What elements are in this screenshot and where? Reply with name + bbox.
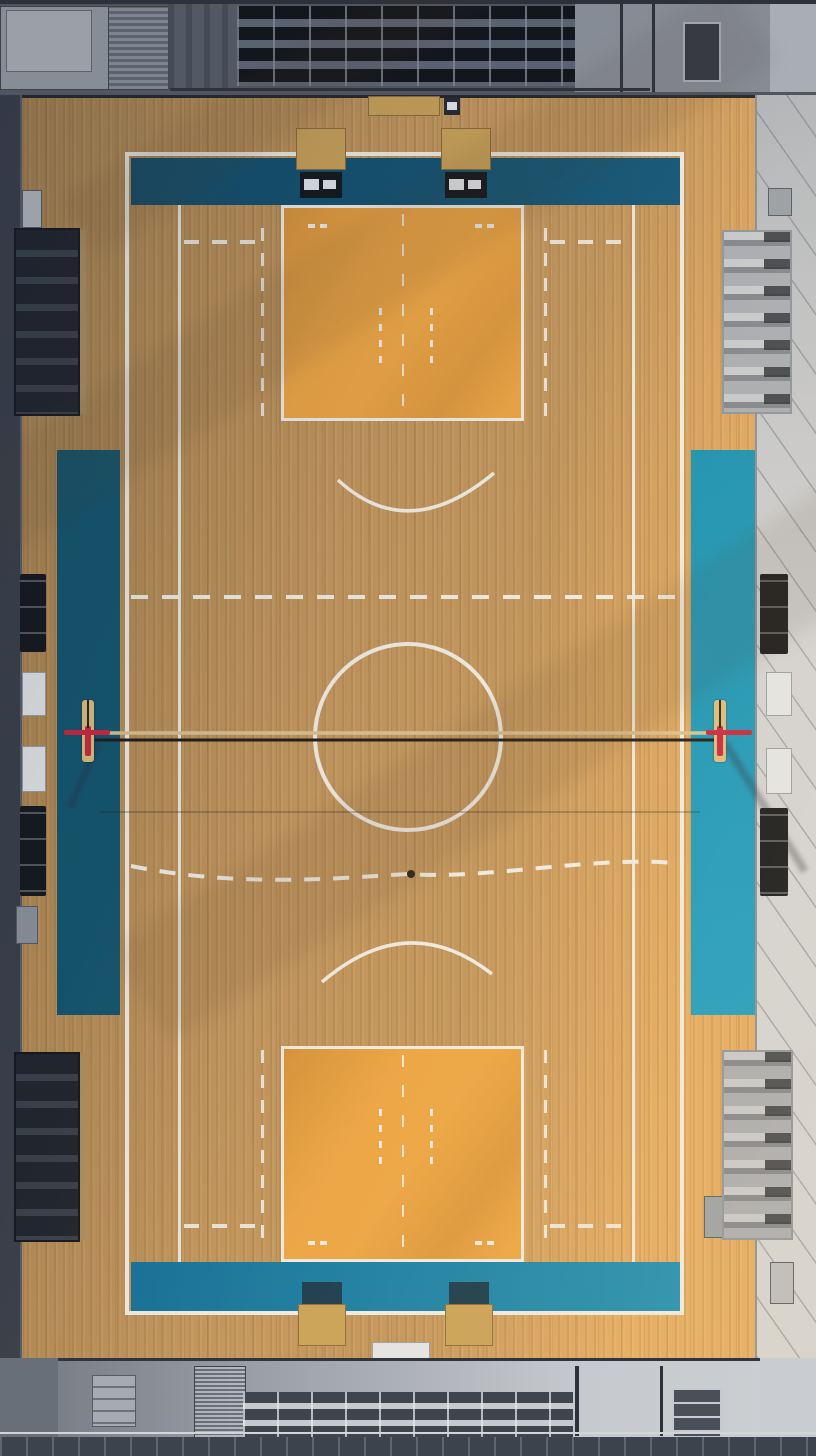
folding-seat-block-top-right	[722, 230, 792, 414]
long-bench-top	[368, 96, 440, 116]
storage-cabinet	[770, 1262, 794, 1304]
bench-table	[441, 128, 491, 170]
scoreboard-box	[760, 808, 788, 896]
top-right-wall	[770, 4, 816, 92]
storage-cabinet	[22, 190, 42, 228]
net-antenna-right	[719, 700, 721, 728]
key-top	[281, 205, 524, 421]
dash-row	[550, 240, 624, 244]
dashed-lane-line	[261, 228, 264, 418]
bench-base	[445, 172, 487, 198]
equipment-box-top	[444, 97, 460, 115]
equipment-box-white	[766, 672, 792, 716]
scoreboard-box	[20, 574, 46, 652]
net-post-right	[717, 726, 723, 756]
sideline-right	[632, 205, 635, 1262]
seat-block-rail	[80, 230, 86, 414]
storage-cabinet	[704, 1196, 724, 1238]
net-post-right-arm	[706, 730, 752, 735]
shelf-cabinet	[92, 1375, 136, 1427]
folding-seat-block-bottom-right	[722, 1050, 793, 1240]
dashed-lane-line	[544, 1050, 547, 1240]
storage-cabinet	[768, 188, 792, 216]
team-bench-bottom-right	[445, 1280, 493, 1346]
panel-divider	[575, 1366, 579, 1436]
baseline-mark	[308, 1241, 330, 1245]
dash-row	[184, 240, 258, 244]
walkway	[0, 1437, 816, 1456]
pipe-column	[620, 4, 623, 92]
dashed-lane-line	[261, 1050, 264, 1240]
gym-aerial-photo	[0, 0, 816, 1456]
key-bottom	[281, 1046, 524, 1262]
bench-slot	[304, 179, 319, 190]
dash-row	[184, 1224, 258, 1228]
bench-table	[445, 1304, 493, 1346]
bench-slot	[323, 180, 336, 189]
bench-slot	[449, 179, 464, 190]
key-center-dashed-line	[402, 214, 404, 412]
folding-seat-block-bottom-left	[14, 1052, 80, 1242]
control-window	[683, 22, 721, 82]
baseline-mark	[475, 224, 497, 228]
panel-divider	[660, 1366, 663, 1436]
bleacher-framework	[168, 4, 238, 90]
top-stairs	[108, 6, 170, 90]
net-antenna-left	[87, 700, 89, 728]
pipe-column	[652, 4, 655, 92]
team-bench-top-right	[441, 128, 491, 206]
equipment-box-white	[766, 748, 792, 794]
baseline-mark	[308, 224, 330, 228]
bleacher-front-rail	[170, 88, 650, 91]
folding-seat-block-top-left	[14, 228, 80, 416]
bench-base	[300, 172, 342, 198]
storage-cabinet	[16, 906, 38, 944]
shelf-window	[672, 1388, 722, 1438]
team-bench-bottom-left	[298, 1280, 346, 1346]
dashed-lane-line	[544, 228, 547, 418]
equipment-slot	[447, 102, 457, 110]
top-left-platform-panel	[6, 10, 92, 72]
free-throw-ticks	[430, 1109, 433, 1165]
bleacher-seat-rows-top	[237, 6, 575, 86]
free-throw-ticks	[379, 1109, 382, 1165]
team-bench-top-left	[296, 128, 346, 206]
equipment-box-white	[22, 672, 46, 716]
bottom-stairs	[194, 1366, 246, 1440]
free-throw-ticks	[430, 308, 433, 364]
bench-table	[298, 1304, 346, 1346]
bench-seat	[449, 1282, 489, 1306]
dash-row	[550, 1224, 624, 1228]
key-center-dashed-line	[402, 1055, 404, 1253]
sideline-left	[178, 205, 181, 1262]
baseline-mark	[475, 1241, 497, 1245]
bench-slot	[468, 180, 481, 189]
free-throw-ticks	[379, 308, 382, 364]
bench-seat	[302, 1282, 342, 1306]
scoreboard-box	[20, 806, 46, 896]
bench-table	[296, 128, 346, 170]
seat-block-rail	[80, 1054, 86, 1240]
net-post-left	[85, 726, 91, 756]
equipment-box-white	[22, 746, 46, 792]
scoreboard-box	[760, 574, 788, 654]
walkway-rail	[0, 1432, 816, 1434]
